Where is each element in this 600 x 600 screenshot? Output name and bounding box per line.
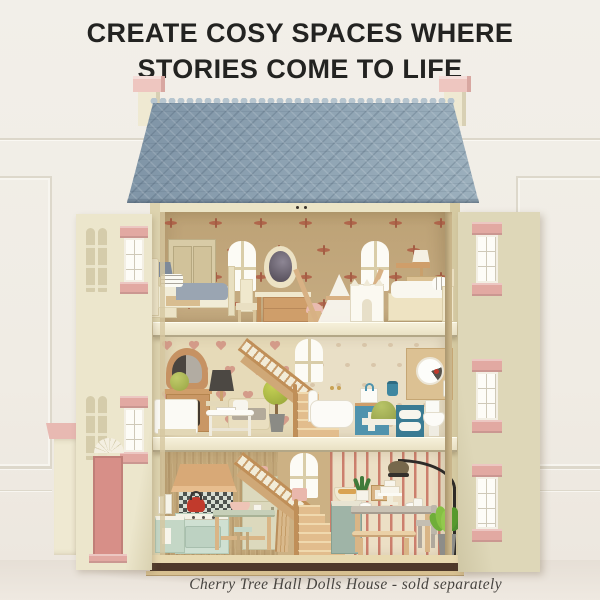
toy-dollhouse-door xyxy=(362,299,372,321)
cooker-hood xyxy=(171,464,237,492)
roof xyxy=(127,103,479,203)
island-leg xyxy=(267,517,271,550)
stair-step xyxy=(298,523,330,532)
headboard-shelf xyxy=(396,263,430,268)
island-top xyxy=(213,510,275,517)
stair-step xyxy=(298,505,320,514)
washer-red-sock xyxy=(434,369,439,374)
vanity-mirror xyxy=(264,246,297,288)
interior-wall-left xyxy=(160,212,165,557)
floor-slab-upper xyxy=(153,322,457,337)
island-shelf xyxy=(221,536,265,540)
toy-dollhouse xyxy=(350,284,384,322)
bench-leg xyxy=(404,538,409,556)
front-facade-door-left xyxy=(76,214,152,570)
paned-window xyxy=(476,235,498,283)
chair-seat xyxy=(236,303,258,310)
window-shutter xyxy=(472,529,502,542)
table-top xyxy=(351,506,435,514)
headline: CREATE COSY SPACES WHERE STORIES COME TO… xyxy=(0,15,600,87)
window-shutter xyxy=(120,396,148,408)
sprig-motif xyxy=(336,343,341,347)
dragonfly-motif xyxy=(299,218,312,228)
towel-roll xyxy=(399,422,421,431)
headline-line-1: CREATE COSY SPACES WHERE xyxy=(0,15,600,51)
door-latch-dot xyxy=(304,206,307,209)
dado-rail-left-upper xyxy=(0,468,52,470)
floor-lamp-shade xyxy=(209,370,234,391)
chimney-cap-right xyxy=(439,76,471,92)
paned-window xyxy=(124,238,144,282)
window-shutter xyxy=(472,464,502,477)
chair-leg xyxy=(431,534,435,548)
gold-tap xyxy=(330,386,334,390)
window-shutter xyxy=(120,282,148,294)
vanity-desk-drawers xyxy=(263,297,309,322)
bench-leg xyxy=(358,538,363,556)
door-step xyxy=(89,554,127,563)
stair-step xyxy=(298,514,325,523)
sprig-motif xyxy=(414,343,419,347)
sprig-motif xyxy=(371,363,376,367)
heart-motif xyxy=(271,342,279,350)
table-shelf xyxy=(212,428,248,431)
chair-leg xyxy=(253,310,256,322)
sprig-motif xyxy=(345,363,350,367)
washer-porthole xyxy=(416,357,444,385)
arched-window xyxy=(295,339,323,382)
dragonfly-motif xyxy=(317,245,330,255)
interior-wall-right xyxy=(445,212,452,557)
gothic-cutout-window xyxy=(86,228,95,292)
chair-leg xyxy=(418,526,422,548)
chair-leg xyxy=(238,310,241,322)
red-kettle xyxy=(187,497,205,512)
window-shutter xyxy=(472,359,502,372)
stair-step xyxy=(297,428,339,437)
table-leg xyxy=(248,416,251,436)
headline-line-2: STORIES COME TO LIFE xyxy=(0,51,600,87)
blue-jar xyxy=(387,381,398,396)
tub-body xyxy=(310,400,354,428)
hero-image: CREATE COSY SPACES WHERE STORIES COME TO… xyxy=(0,0,600,600)
green-ball-decor xyxy=(170,372,189,391)
bed-footboard xyxy=(228,266,235,316)
chimney-cap-left xyxy=(133,76,165,92)
cooker-knob xyxy=(202,516,205,519)
basket-base xyxy=(371,419,397,425)
paned-window xyxy=(476,477,498,529)
stand-base xyxy=(382,502,398,505)
window-shutter xyxy=(120,452,148,464)
window-shutter xyxy=(472,420,502,433)
sprig-motif xyxy=(310,383,315,387)
island-leg xyxy=(215,517,219,550)
table-lamp-shade xyxy=(412,250,430,264)
window-shutter xyxy=(120,226,148,238)
gold-tap xyxy=(337,386,341,390)
table-top xyxy=(206,410,254,416)
window-shutter xyxy=(472,283,502,296)
base-board xyxy=(150,555,460,563)
bag-handle xyxy=(365,383,374,391)
doctors-bag xyxy=(360,388,378,403)
sprig-motif xyxy=(388,343,393,347)
base-shadow-strip xyxy=(150,563,460,571)
vanity-desk-leg xyxy=(257,297,261,322)
toy-dollhouse-roofline xyxy=(350,279,384,286)
front-door-pink xyxy=(93,456,123,556)
tiered-cake-stand xyxy=(377,480,403,506)
dragonfly-motif xyxy=(344,218,357,228)
caption: Cherry Tree Hall Dolls House - sold sepa… xyxy=(189,576,502,594)
bed-blanket xyxy=(176,283,228,300)
table-leg xyxy=(209,416,212,436)
sprig-motif xyxy=(397,363,402,367)
kettle-handle xyxy=(190,491,202,500)
heart-motif xyxy=(217,342,225,350)
white-jar xyxy=(165,494,172,514)
fruit xyxy=(338,489,357,494)
dragonfly-motif xyxy=(209,218,222,228)
paned-window xyxy=(476,372,498,420)
dragonfly-motif xyxy=(254,218,267,228)
mirror-glass xyxy=(269,251,292,282)
towel-shelf xyxy=(396,405,424,437)
dragonfly-motif xyxy=(389,218,402,228)
paned-window xyxy=(124,408,144,452)
dado-rail-left-lower xyxy=(0,490,52,492)
plant-pot xyxy=(356,490,369,501)
gothic-cutout-window xyxy=(98,228,107,292)
toilet-base xyxy=(429,426,439,436)
bench-top xyxy=(352,531,416,537)
window-shutter xyxy=(472,222,502,235)
stool-leg xyxy=(246,532,249,550)
wainscot-panel-left xyxy=(0,176,52,468)
front-facade-door-right xyxy=(458,212,540,572)
stool-leg xyxy=(237,532,240,550)
dragonfly-motif xyxy=(164,218,177,228)
door-latch-dot xyxy=(296,206,299,209)
floor-slab-lower xyxy=(153,437,457,452)
stair-step xyxy=(298,532,335,541)
lamp-shade-rim xyxy=(388,473,409,477)
cooker-knob xyxy=(192,516,195,519)
towel-roll xyxy=(399,410,421,419)
sprig-motif xyxy=(362,343,367,347)
